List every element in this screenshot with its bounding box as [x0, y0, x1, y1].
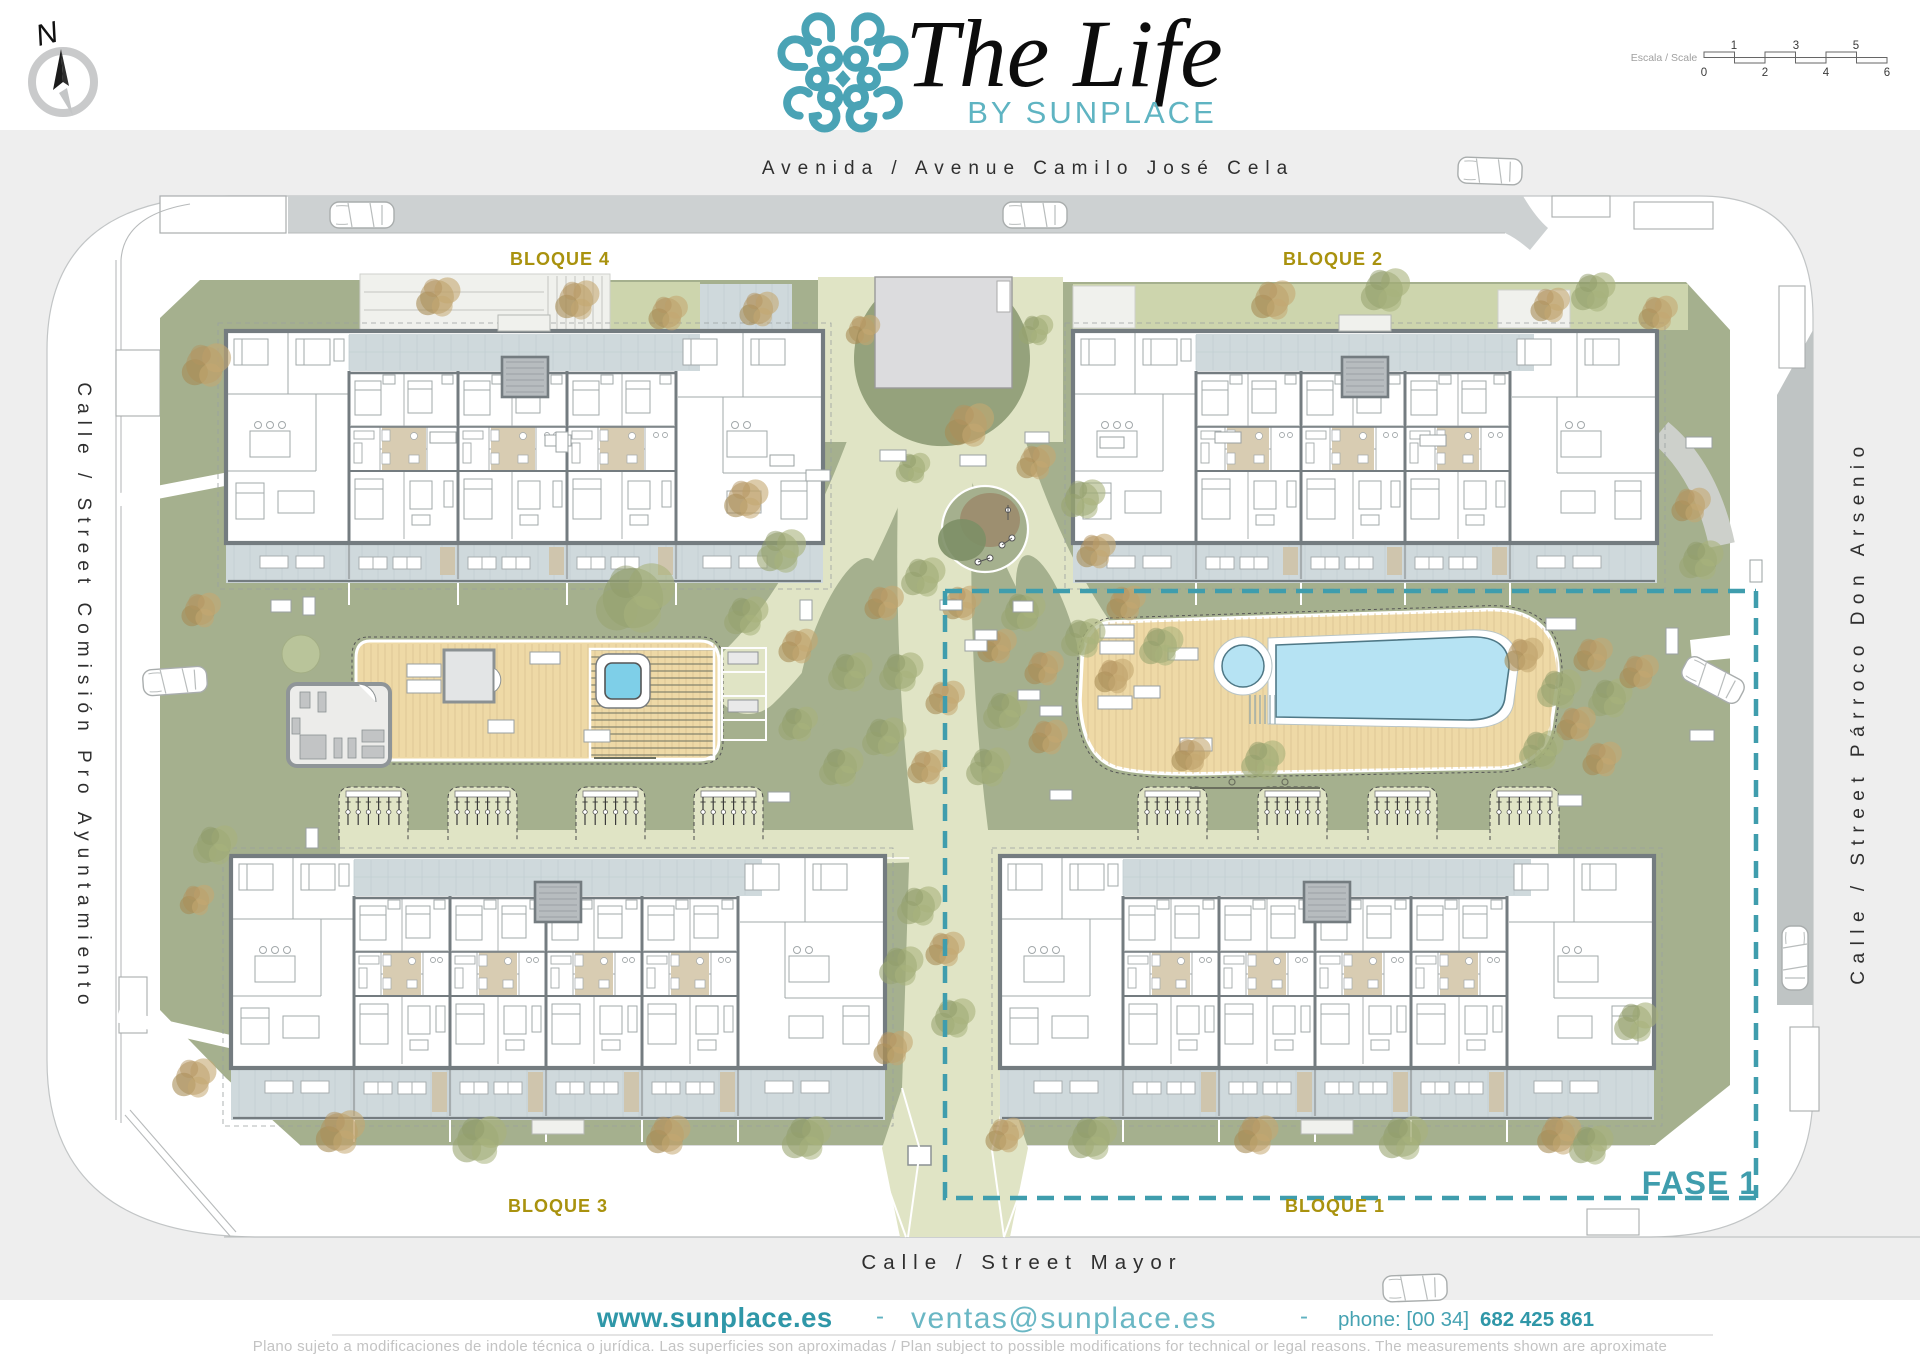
- svg-text:BLOQUE 2: BLOQUE 2: [1283, 249, 1383, 269]
- svg-text:Avenida / Avenue Camilo José: Avenida / Avenue Camilo José Cela: [762, 158, 1294, 179]
- svg-text:0: 0: [1701, 67, 1707, 79]
- svg-text:6: 6: [1884, 67, 1890, 79]
- svg-text:BLOQUE 4: BLOQUE 4: [510, 249, 610, 269]
- svg-text:2: 2: [1762, 67, 1768, 79]
- svg-text:682 425 861: 682 425 861: [1480, 1308, 1594, 1331]
- svg-text:FASE 1: FASE 1: [1642, 1165, 1758, 1201]
- svg-text:1: 1: [1731, 40, 1737, 52]
- svg-text:Calle / Street Comisión Pro: Calle / Street Comisión Pro Ayuntamiento: [73, 382, 94, 1011]
- svg-text:4: 4: [1823, 67, 1830, 79]
- svg-text:5: 5: [1853, 40, 1859, 52]
- svg-text:Calle / Street Párroco Don: Calle / Street Párroco Don Arsenio: [1848, 439, 1869, 984]
- svg-text:Escala / Scale: Escala / Scale: [1631, 52, 1698, 64]
- svg-text:The Life: The Life: [905, 0, 1222, 107]
- svg-text:BLOQUE 3: BLOQUE 3: [508, 1196, 608, 1216]
- svg-text:BY SUNPLACE: BY SUNPLACE: [967, 95, 1217, 130]
- svg-text:Calle / Street Mayor: Calle / Street Mayor: [861, 1251, 1182, 1274]
- svg-text:3: 3: [1793, 40, 1799, 52]
- svg-text:BLOQUE 1: BLOQUE 1: [1285, 1196, 1385, 1216]
- svg-text:-: -: [1300, 1303, 1308, 1330]
- svg-text:-: -: [876, 1303, 884, 1330]
- svg-text:phone: [00 34]: phone: [00 34]: [1338, 1308, 1469, 1331]
- svg-text:www.sunplace.es: www.sunplace.es: [596, 1302, 833, 1333]
- svg-text:Plano sujeto a modificaciones: Plano sujeto a modificaciones de indole …: [253, 1338, 1667, 1355]
- svg-text:ventas@sunplace.es: ventas@sunplace.es: [911, 1302, 1217, 1335]
